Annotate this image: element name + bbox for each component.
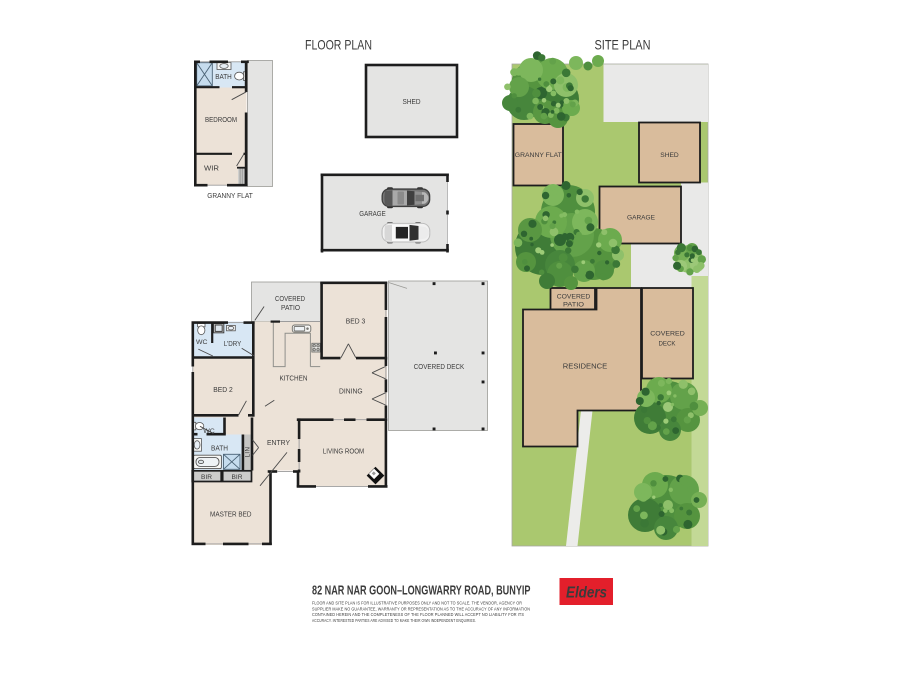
svg-text:SHED: SHED [403,97,421,106]
svg-text:COVERED DECK: COVERED DECK [414,362,465,371]
svg-text:Elders: Elders [566,585,607,602]
svg-text:82 NAR NAR GOON–LONGWARRY ROAD: 82 NAR NAR GOON–LONGWARRY ROAD, BUNYIP [312,584,531,598]
svg-text:COVERED: COVERED [557,294,591,301]
svg-text:GARAGE: GARAGE [627,215,655,222]
svg-text:BED 2: BED 2 [213,385,233,394]
svg-text:BEDROOM: BEDROOM [205,115,237,124]
svg-text:WC: WC [196,339,208,346]
svg-text:SUPPLIER MAKE NO GUARANTEE, WA: SUPPLIER MAKE NO GUARANTEE, WARRANTY OR … [312,606,530,612]
svg-text:DINING: DINING [339,387,363,396]
svg-text:SHED: SHED [660,152,679,159]
svg-text:BATH: BATH [211,446,228,453]
svg-text:ENTRY: ENTRY [267,438,290,447]
svg-text:BIR: BIR [232,474,243,481]
svg-text:MASTER BED: MASTER BED [210,510,252,519]
svg-text:COVERED: COVERED [650,331,685,338]
svg-text:DECK: DECK [659,341,676,348]
svg-text:ACCURACY. INTERESTED PARTIES A: ACCURACY. INTERESTED PARTIES ARE ADVISED… [312,618,476,624]
svg-text:COVERED: COVERED [275,294,305,303]
svg-text:CONTAINED HEREIN AND THE COMPL: CONTAINED HEREIN AND THE COMPLETENESS OF… [312,612,524,618]
svg-text:BED 3: BED 3 [346,316,366,325]
svg-text:SITE PLAN: SITE PLAN [595,38,651,53]
svg-text:RESIDENCE: RESIDENCE [563,362,608,371]
svg-text:WC: WC [203,428,215,435]
svg-text:PATIO: PATIO [281,303,300,312]
svg-text:LIVING ROOM: LIVING ROOM [323,446,365,455]
svg-text:L’DRY: L’DRY [224,341,242,348]
svg-text:LIN: LIN [245,447,252,458]
svg-text:GRANNY FLAT: GRANNY FLAT [515,152,562,159]
svg-text:GRANNY FLAT: GRANNY FLAT [207,191,253,200]
svg-text:FLOOR PLAN: FLOOR PLAN [305,38,372,53]
svg-text:WIR: WIR [204,166,219,173]
svg-text:BATH: BATH [215,74,232,81]
svg-text:BIR: BIR [201,474,212,481]
svg-text:KITCHEN: KITCHEN [280,374,308,383]
svg-text:GARAGE: GARAGE [359,209,386,218]
svg-text:PATIO: PATIO [563,302,584,309]
svg-text:FLOOR AND SITE PLAN IS FOR ILL: FLOOR AND SITE PLAN IS FOR ILLUSTRATIVE … [312,601,522,607]
